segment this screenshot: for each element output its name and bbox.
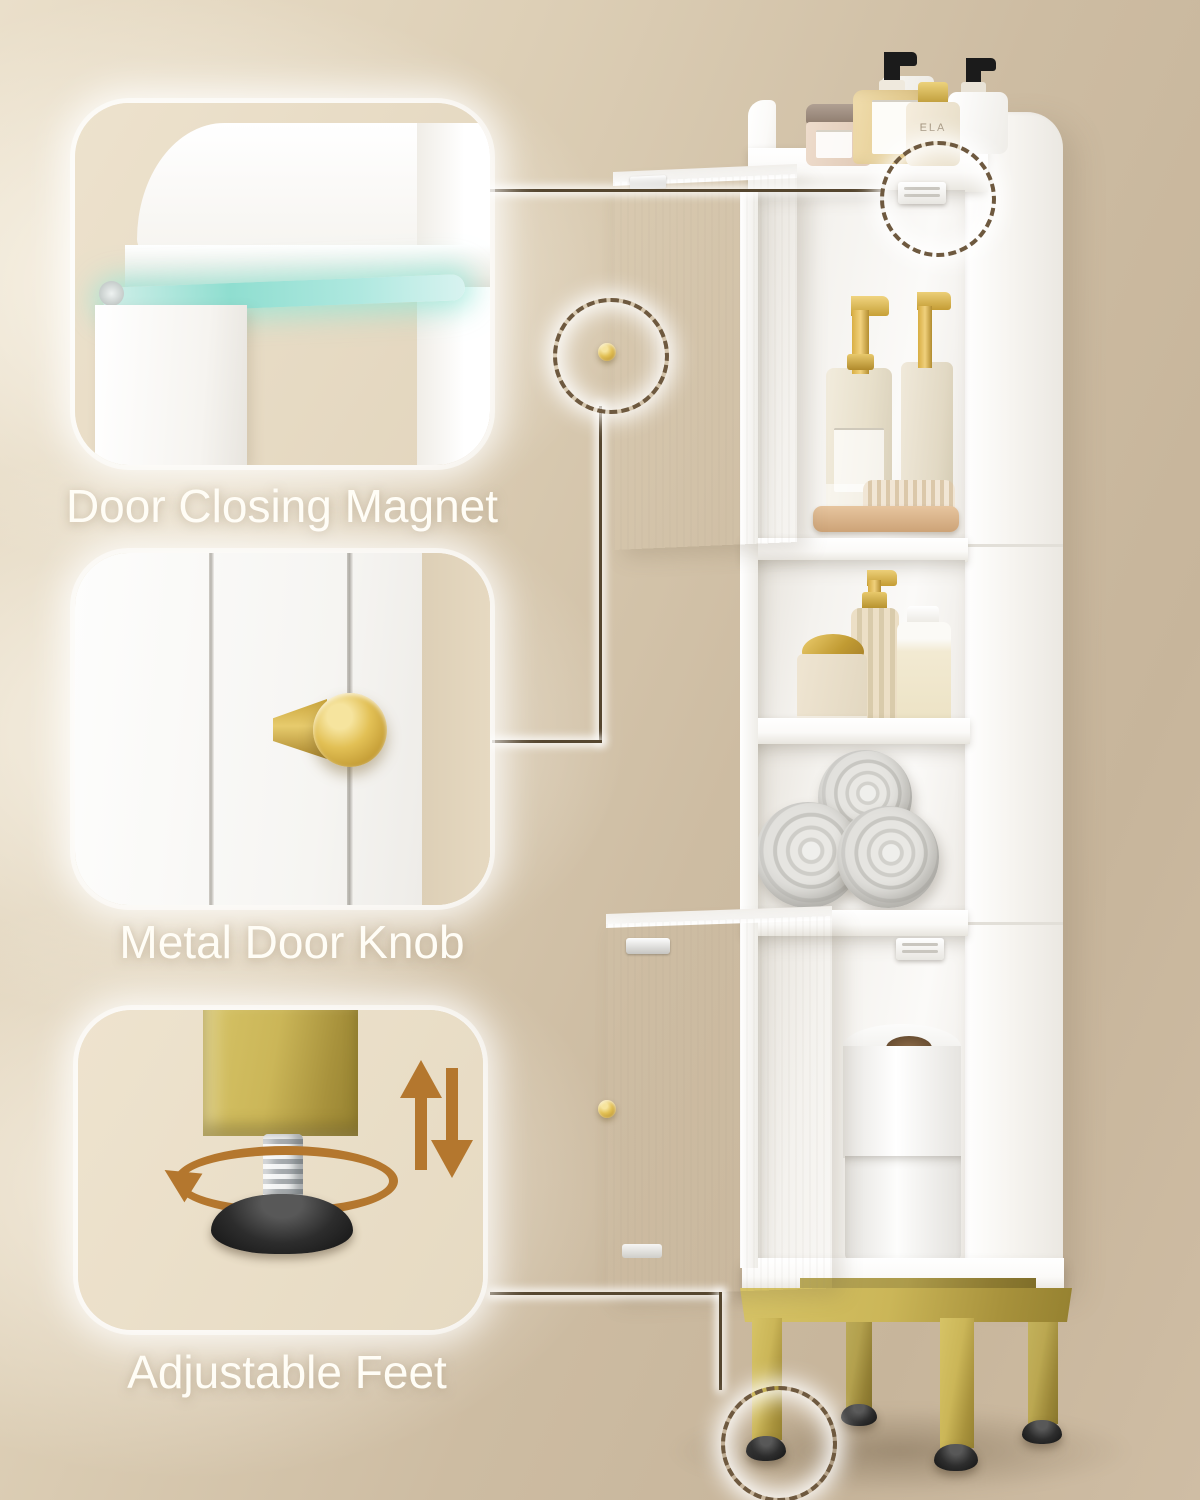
knob-face bbox=[313, 693, 387, 767]
wooden-tray bbox=[813, 506, 959, 532]
magnet-inset-door-panel bbox=[95, 305, 247, 465]
cabinet-right-side-panel bbox=[963, 112, 1063, 1288]
side-panel-seam-1 bbox=[963, 544, 1063, 547]
inset-metal-door-knob bbox=[75, 553, 490, 905]
side-panel-seam-2 bbox=[963, 922, 1063, 925]
middle-cube-shelf bbox=[748, 718, 970, 744]
callout-ring-knob bbox=[553, 298, 669, 414]
door-magnet-bracket-bottom bbox=[896, 938, 944, 960]
knob-inset-groove-1 bbox=[209, 553, 214, 905]
lower-door-knob bbox=[598, 1100, 616, 1118]
callout-label-door-closing-magnet: Door Closing Magnet bbox=[22, 480, 542, 533]
rolled-towel-right bbox=[837, 806, 939, 908]
white-cream-bottle-body bbox=[897, 622, 951, 728]
perfume-bottle-label: ELA bbox=[906, 122, 960, 134]
foot-inset-gold-leg bbox=[203, 1010, 358, 1136]
down-arrow-icon bbox=[431, 1140, 473, 1178]
middle-cube-upper-interior bbox=[755, 560, 965, 742]
up-arrow-tail bbox=[415, 1096, 427, 1170]
stand-front-right-leg bbox=[940, 1318, 974, 1448]
cream-jar-label bbox=[816, 130, 852, 158]
lotion-pump-front-collar bbox=[847, 354, 874, 370]
callout-ring-foot bbox=[721, 1386, 837, 1500]
upper-door-magnet-plate bbox=[630, 175, 666, 190]
connector-line-feet-horizontal bbox=[490, 1292, 722, 1295]
magnet-strip-metal-cap bbox=[99, 281, 124, 306]
connector-line-knob-vertical bbox=[599, 406, 602, 742]
lower-door-open bbox=[606, 916, 832, 1296]
stand-front-rail bbox=[740, 1288, 1072, 1322]
connector-line-magnet bbox=[490, 189, 882, 192]
lower-door-hinge-bottom bbox=[622, 1244, 662, 1258]
callout-label-adjustable-feet: Adjustable Feet bbox=[27, 1346, 547, 1399]
callout-label-metal-door-knob: Metal Door Knob bbox=[32, 916, 552, 969]
up-arrow-icon bbox=[400, 1060, 442, 1098]
toilet-paper-roll-1-body bbox=[843, 1046, 961, 1158]
callout-ring-magnet bbox=[880, 141, 996, 257]
inset-adjustable-feet bbox=[78, 1010, 483, 1330]
stand-back-right-foot bbox=[1022, 1420, 1062, 1444]
middle-cube-lower-interior bbox=[755, 744, 965, 914]
product-feature-infographic: ELA bbox=[0, 0, 1200, 1500]
stand-front-right-foot bbox=[934, 1444, 978, 1471]
down-arrow-tail bbox=[446, 1068, 458, 1142]
foot-inset-black-pad bbox=[211, 1194, 353, 1254]
lotion-pump-back-stem bbox=[918, 306, 932, 368]
knob-inset-wall-background bbox=[422, 553, 490, 905]
toilet-paper-roll-2-body bbox=[845, 1156, 961, 1262]
inset-door-closing-magnet bbox=[75, 103, 490, 465]
connector-line-knob-horizontal bbox=[492, 740, 602, 743]
connector-line-feet-vertical bbox=[719, 1292, 722, 1390]
lower-door-hinge-top bbox=[626, 938, 670, 954]
stand-back-left-foot bbox=[841, 1404, 877, 1426]
